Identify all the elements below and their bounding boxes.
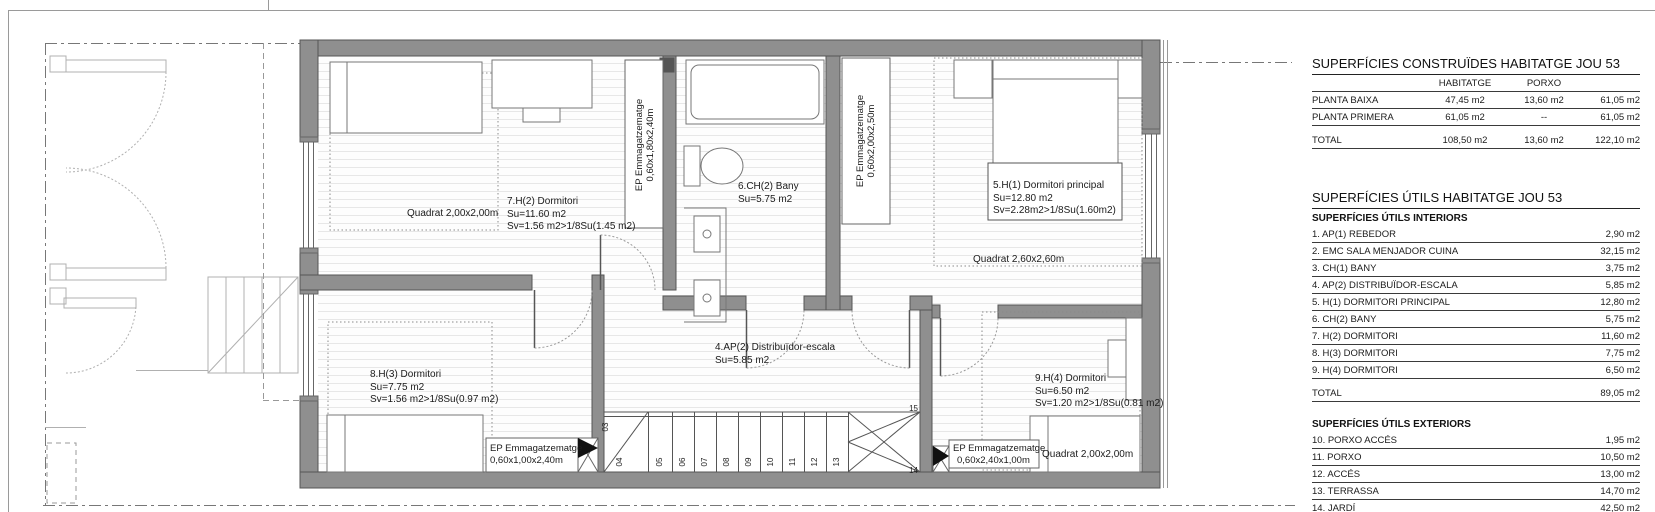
total-total: 122,10 m2	[1582, 135, 1640, 146]
stair-number: 15	[894, 404, 918, 414]
row-label: 8. H(3) DORMITORI	[1312, 348, 1398, 359]
chair-room9	[1108, 340, 1126, 377]
row-label: 14. JARDÍ	[1312, 503, 1355, 512]
ep2-label: EP Emmagatzematge 0,60x2,00x2,50m	[855, 66, 877, 216]
total-value: 89,05 m2	[1600, 388, 1640, 399]
table-total-row: TOTAL 108,50 m2 13,60 m2 122,10 m2	[1312, 132, 1640, 149]
ep3-label: EP Emmagatzematge 0,60x1,00x2,40m	[490, 443, 582, 466]
ep4-line1: EP Emmagatzematge	[953, 443, 1045, 455]
ep1-line1: EP Emmagatzematge	[634, 70, 645, 220]
table-row: 3. CH(1) BANY 3,75 m2	[1312, 260, 1640, 277]
table-row: 10. PORXO ACCÉS 1,95 m2	[1312, 432, 1640, 449]
usable-exteriors-header: SUPERFÍCIES ÚTILS EXTERIORS	[1312, 415, 1640, 432]
chair-room7	[523, 108, 560, 122]
table-row: 4. AP(2) DISTRIBUÏDOR-ESCALA 5,85 m2	[1312, 277, 1640, 294]
table-row: PLANTA PRIMERA 61,05 m2 -- 61,05 m2	[1312, 109, 1640, 126]
bathtub-inner	[691, 65, 819, 119]
total-habitatge: 108,50 m2	[1424, 135, 1506, 146]
row-value: 13,00 m2	[1600, 469, 1640, 480]
row-label: 13. TERRASSA	[1312, 486, 1379, 497]
row-value: 5,85 m2	[1606, 280, 1640, 291]
row-value: 11,60 m2	[1601, 331, 1640, 342]
ep3-line1: EP Emmagatzematge	[490, 443, 582, 455]
stair-number: 08	[722, 455, 732, 469]
row-label: 12. ACCÉS	[1312, 469, 1360, 480]
stair-number: 12	[810, 455, 820, 469]
room9-name: 9.H(4) Dormitori	[1035, 373, 1163, 386]
row-value: 7,75 m2	[1606, 348, 1640, 359]
bed-room8	[327, 415, 483, 472]
col-header-porxo: PORXO	[1506, 78, 1582, 89]
room5-sv: Sv=2.28m2>1/8Su(1.60m2)	[993, 205, 1116, 218]
stair-number: 04	[615, 455, 625, 469]
row-label: 6. CH(2) BANY	[1312, 314, 1376, 325]
ep3-line2: 0,60x1,00x2,40m	[490, 455, 582, 467]
row-value: 32,15 m2	[1600, 246, 1640, 257]
room9-su: Su=6.50 m2	[1035, 386, 1163, 399]
row-label: 4. AP(2) DISTRIBUÏDOR-ESCALA	[1312, 280, 1458, 291]
total-porxo: 13,60 m2	[1506, 135, 1582, 146]
room5-label: 5.H(1) Dormitori principal Su=12.80 m2 S…	[993, 180, 1116, 218]
stair-number: 07	[700, 455, 710, 469]
room7-quadrat-label: Quadrat 2,00x2,00m	[407, 208, 498, 221]
room8-su: Su=7.75 m2	[370, 382, 498, 395]
distributor-name: 4.AP(2) Distribuïdor-escala	[715, 342, 835, 355]
total-label: TOTAL	[1312, 135, 1424, 146]
nightstand-left	[954, 60, 992, 98]
table-row: 2. EMC SALA MENJADOR CUINA 32,15 m2	[1312, 243, 1640, 260]
table-row: 8. H(3) DORMITORI 7,75 m2	[1312, 345, 1640, 362]
floor-plan-sheet: 7.H(2) Dormitori Su=11.60 m2 Sv=1.56 m2>…	[0, 0, 1655, 512]
room5-su: Su=12.80 m2	[993, 193, 1116, 206]
ep2-line2: 0,60x2,00x2,50m	[866, 66, 877, 216]
table-constructed-header-row: HABITATGE PORXO	[1312, 75, 1640, 92]
row-porxo: 13,60 m2	[1506, 95, 1582, 106]
row-value: 14,70 m2	[1600, 486, 1640, 497]
room9-label: 9.H(4) Dormitori Su=6.50 m2 Sv=1.20 m2>1…	[1035, 373, 1163, 411]
table-total-row: TOTAL 89,05 m2	[1312, 385, 1640, 402]
stair-number: 06	[678, 455, 688, 469]
table-row: 9. H(4) DORMITORI 6,50 m2	[1312, 362, 1640, 379]
row-value: 10,50 m2	[1600, 452, 1640, 463]
ep2-line1: EP Emmagatzematge	[855, 66, 866, 216]
stair-number: 11	[788, 455, 798, 469]
table-row: 14. JARDÍ 42,50 m2	[1312, 500, 1640, 512]
table-usable-title: SUPERFÍCIES ÚTILS HABITATGE JOU 53	[1312, 190, 1640, 209]
table-constructed-title: SUPERFÍCIES CONSTRUÏDES HABITATGE JOU 53	[1312, 56, 1640, 75]
col-header-habitatge: HABITATGE	[1424, 78, 1506, 89]
table-row: 6. CH(2) BANY 5,75 m2	[1312, 311, 1640, 328]
ep1-label: EP Emmagatzematge 0,60x1,80x2,40m	[634, 70, 656, 220]
stair-number: 13	[832, 455, 842, 469]
room8-sv: Sv=1.56 m2>1/8Su(0.97 m2)	[370, 394, 498, 407]
distributor-label: 4.AP(2) Distribuïdor-escala Su=5.85 m2	[715, 342, 835, 367]
table-usable-areas: SUPERFÍCIES ÚTILS HABITATGE JOU 53 SUPER…	[1312, 190, 1640, 512]
row-value: 3,75 m2	[1606, 263, 1640, 274]
stair-number: 09	[744, 455, 754, 469]
room8-name: 8.H(3) Dormitori	[370, 369, 498, 382]
row-value: 2,90 m2	[1606, 229, 1640, 240]
ep1-line2: 0,60x1,80x2,40m	[645, 70, 656, 220]
toilet-tank	[684, 146, 700, 186]
table-constructed-areas: SUPERFÍCIES CONSTRUÏDES HABITATGE JOU 53…	[1312, 56, 1640, 149]
stair-number: 03	[601, 420, 611, 434]
room7-name: 7.H(2) Dormitori	[507, 196, 635, 209]
ep4-line2: 0,60x2,40x1,00m	[957, 455, 1045, 467]
desk-room7	[492, 60, 592, 108]
room9-sv: Sv=1.20 m2>1/8Su(0.81 m2)	[1035, 398, 1163, 411]
toilet-bowl	[701, 148, 743, 184]
table-row: 1. AP(1) REBEDOR 2,90 m2	[1312, 226, 1640, 243]
bed-room9	[1030, 416, 1140, 472]
party-wall-strip	[1164, 40, 1168, 488]
row-total: 61,05 m2	[1582, 95, 1640, 106]
room5-quadrat-label: Quadrat 2,60x2,60m	[973, 254, 1064, 267]
room7-label: 7.H(2) Dormitori Su=11.60 m2 Sv=1.56 m2>…	[507, 196, 635, 234]
row-porxo: --	[1506, 112, 1582, 123]
row-value: 42,50 m2	[1600, 503, 1640, 512]
total-label: TOTAL	[1312, 388, 1342, 399]
row-value: 1,95 m2	[1606, 435, 1640, 446]
room8-label: 8.H(3) Dormitori Su=7.75 m2 Sv=1.56 m2>1…	[370, 369, 498, 407]
row-habitatge: 61,05 m2	[1424, 112, 1506, 123]
bath-name: 6.CH(2) Bany	[738, 181, 799, 194]
table-row: 7. H(2) DORMITORI 11,60 m2	[1312, 328, 1640, 345]
row-value: 5,75 m2	[1606, 314, 1640, 325]
row-value: 6,50 m2	[1606, 365, 1640, 376]
row-label: PLANTA BAIXA	[1312, 95, 1424, 106]
neighbor-unit-outline	[45, 43, 300, 503]
room7-sv: Sv=1.56 m2>1/8Su(1.45 m2)	[507, 221, 635, 234]
sink-1	[694, 216, 720, 252]
room9-quadrat-label: Quadrat 2,00x2,00m	[1042, 449, 1133, 462]
row-label: 7. H(2) DORMITORI	[1312, 331, 1398, 342]
stair-number: 05	[655, 455, 665, 469]
row-label: 5. H(1) DORMITORI PRINCIPAL	[1312, 297, 1450, 308]
table-row: 11. PORXO 10,50 m2	[1312, 449, 1640, 466]
bed-room7	[330, 62, 482, 133]
sink-2	[694, 280, 720, 316]
row-label: 11. PORXO	[1312, 452, 1361, 463]
row-label: 3. CH(1) BANY	[1312, 263, 1376, 274]
stair-number: 10	[766, 455, 776, 469]
row-label: 9. H(4) DORMITORI	[1312, 365, 1398, 376]
row-total: 61,05 m2	[1582, 112, 1640, 123]
room5-name: 5.H(1) Dormitori principal	[993, 180, 1116, 193]
bath-su: Su=5.75 m2	[738, 194, 799, 207]
bath-label: 6.CH(2) Bany Su=5.75 m2	[738, 181, 799, 206]
room7-su: Su=11.60 m2	[507, 209, 635, 222]
table-row: 12. ACCÉS 13,00 m2	[1312, 466, 1640, 483]
row-label: 2. EMC SALA MENJADOR CUINA	[1312, 246, 1458, 257]
row-label: 1. AP(1) REBEDOR	[1312, 229, 1396, 240]
staircase	[604, 412, 920, 472]
distributor-su: Su=5.85 m2	[715, 355, 835, 368]
table-row: 5. H(1) DORMITORI PRINCIPAL 12,80 m2	[1312, 294, 1640, 311]
ep4-label: EP Emmagatzematge 0,60x2,40x1,00m	[953, 443, 1045, 466]
stair-number: 14	[894, 466, 918, 476]
table-row: PLANTA BAIXA 47,45 m2 13,60 m2 61,05 m2	[1312, 92, 1640, 109]
row-habitatge: 47,45 m2	[1424, 95, 1506, 106]
usable-interiors-header: SUPERFÍCIES ÚTILS INTERIORS	[1312, 209, 1640, 226]
table-row: 13. TERRASSA 14,70 m2	[1312, 483, 1640, 500]
row-value: 12,80 m2	[1600, 297, 1640, 308]
row-label: 10. PORXO ACCÉS	[1312, 435, 1397, 446]
row-label: PLANTA PRIMERA	[1312, 112, 1424, 123]
